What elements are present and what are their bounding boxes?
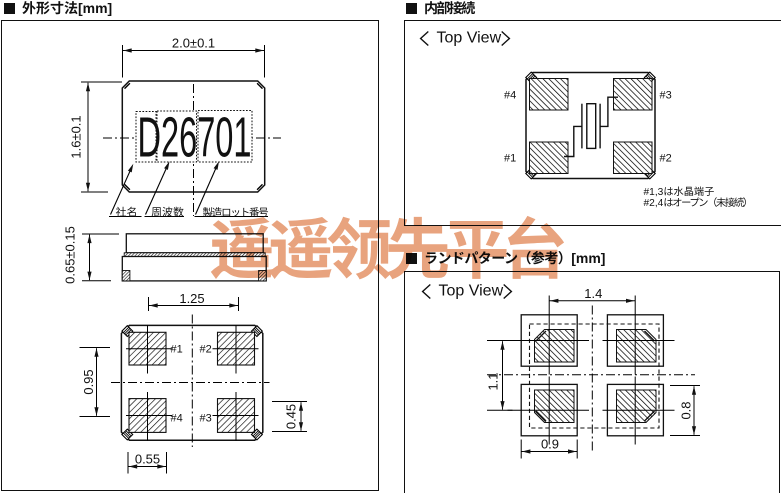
svg-text:1.25: 1.25 [179, 291, 204, 306]
svg-text:0.65±0.15: 0.65±0.15 [63, 226, 78, 284]
svg-text:1.1: 1.1 [486, 372, 501, 390]
svg-text:1.4: 1.4 [584, 286, 602, 301]
svg-text:D26701: D26701 [138, 106, 252, 169]
svg-text:0.45: 0.45 [284, 404, 299, 429]
svg-text:周波数: 周波数 [151, 204, 184, 220]
svg-text:#3: #3 [200, 413, 212, 425]
svg-text:0.55: 0.55 [135, 452, 160, 467]
svg-text:Top View: Top View [437, 29, 502, 46]
svg-text:0.95: 0.95 [81, 369, 96, 394]
svg-text:#2: #2 [200, 344, 212, 356]
svg-text:0.8: 0.8 [679, 401, 694, 419]
svg-text:#2: #2 [660, 153, 672, 165]
svg-text:#1: #1 [504, 153, 516, 165]
svg-text:#3: #3 [660, 90, 672, 102]
svg-text:#1: #1 [171, 344, 183, 356]
svg-text:2.0±0.1: 2.0±0.1 [172, 35, 215, 50]
svg-text:#4: #4 [171, 413, 183, 425]
svg-text:1.6±0.1: 1.6±0.1 [69, 115, 84, 158]
svg-text:社名: 社名 [116, 204, 138, 220]
svg-text:#4: #4 [504, 90, 516, 102]
svg-text:0.9: 0.9 [541, 436, 559, 451]
